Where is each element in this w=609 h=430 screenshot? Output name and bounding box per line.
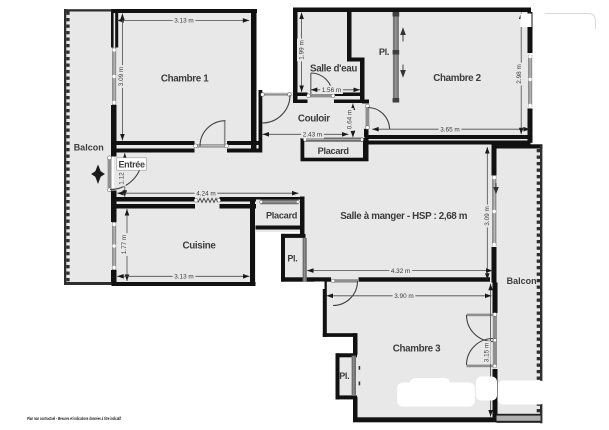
svg-text:4.24 m: 4.24 m bbox=[196, 190, 216, 197]
svg-text:Salle d'eau: Salle d'eau bbox=[310, 64, 357, 75]
svg-text:Balcon: Balcon bbox=[74, 143, 104, 153]
svg-text:Entrée: Entrée bbox=[118, 159, 145, 169]
svg-text:3.09 m: 3.09 m bbox=[118, 67, 125, 87]
svg-text:Placard: Placard bbox=[318, 146, 349, 156]
svg-text:1.77 m: 1.77 m bbox=[121, 235, 128, 255]
svg-text:3.09 m: 3.09 m bbox=[484, 206, 491, 226]
svg-text:0.64 m: 0.64 m bbox=[347, 110, 354, 130]
svg-text:Plan non contractuel - Mesures: Plan non contractuel - Mesures et indica… bbox=[27, 416, 121, 421]
svg-text:4.32 m: 4.32 m bbox=[391, 268, 411, 275]
svg-text:3.65 m: 3.65 m bbox=[440, 126, 460, 133]
svg-text:1.56 m: 1.56 m bbox=[322, 87, 342, 94]
svg-text:Pl.: Pl. bbox=[287, 253, 297, 263]
svg-text:Cuisine: Cuisine bbox=[183, 241, 217, 252]
svg-text:1.99 m: 1.99 m bbox=[298, 40, 305, 60]
svg-text:Balcon: Balcon bbox=[507, 276, 537, 286]
svg-text:Chambre 1: Chambre 1 bbox=[161, 74, 209, 85]
svg-text:Salle à manger - HSP : 2,68 m: Salle à manger - HSP : 2,68 m bbox=[340, 211, 468, 222]
svg-text:Placard: Placard bbox=[266, 211, 297, 221]
svg-text:3.13 m: 3.13 m bbox=[174, 18, 194, 25]
svg-text:Pl.: Pl. bbox=[339, 371, 349, 381]
svg-text:3.15 m: 3.15 m bbox=[484, 343, 491, 363]
svg-text:Chambre 2: Chambre 2 bbox=[433, 73, 481, 84]
svg-text:3.90 m: 3.90 m bbox=[394, 293, 414, 300]
svg-text:3.13 m: 3.13 m bbox=[174, 274, 194, 281]
svg-text:Couloir: Couloir bbox=[298, 114, 330, 125]
svg-text:2.43 m: 2.43 m bbox=[303, 132, 323, 139]
svg-text:2.98 m: 2.98 m bbox=[516, 64, 523, 84]
svg-text:Pl.: Pl. bbox=[379, 47, 389, 57]
svg-text:Chambre 3: Chambre 3 bbox=[393, 344, 441, 355]
